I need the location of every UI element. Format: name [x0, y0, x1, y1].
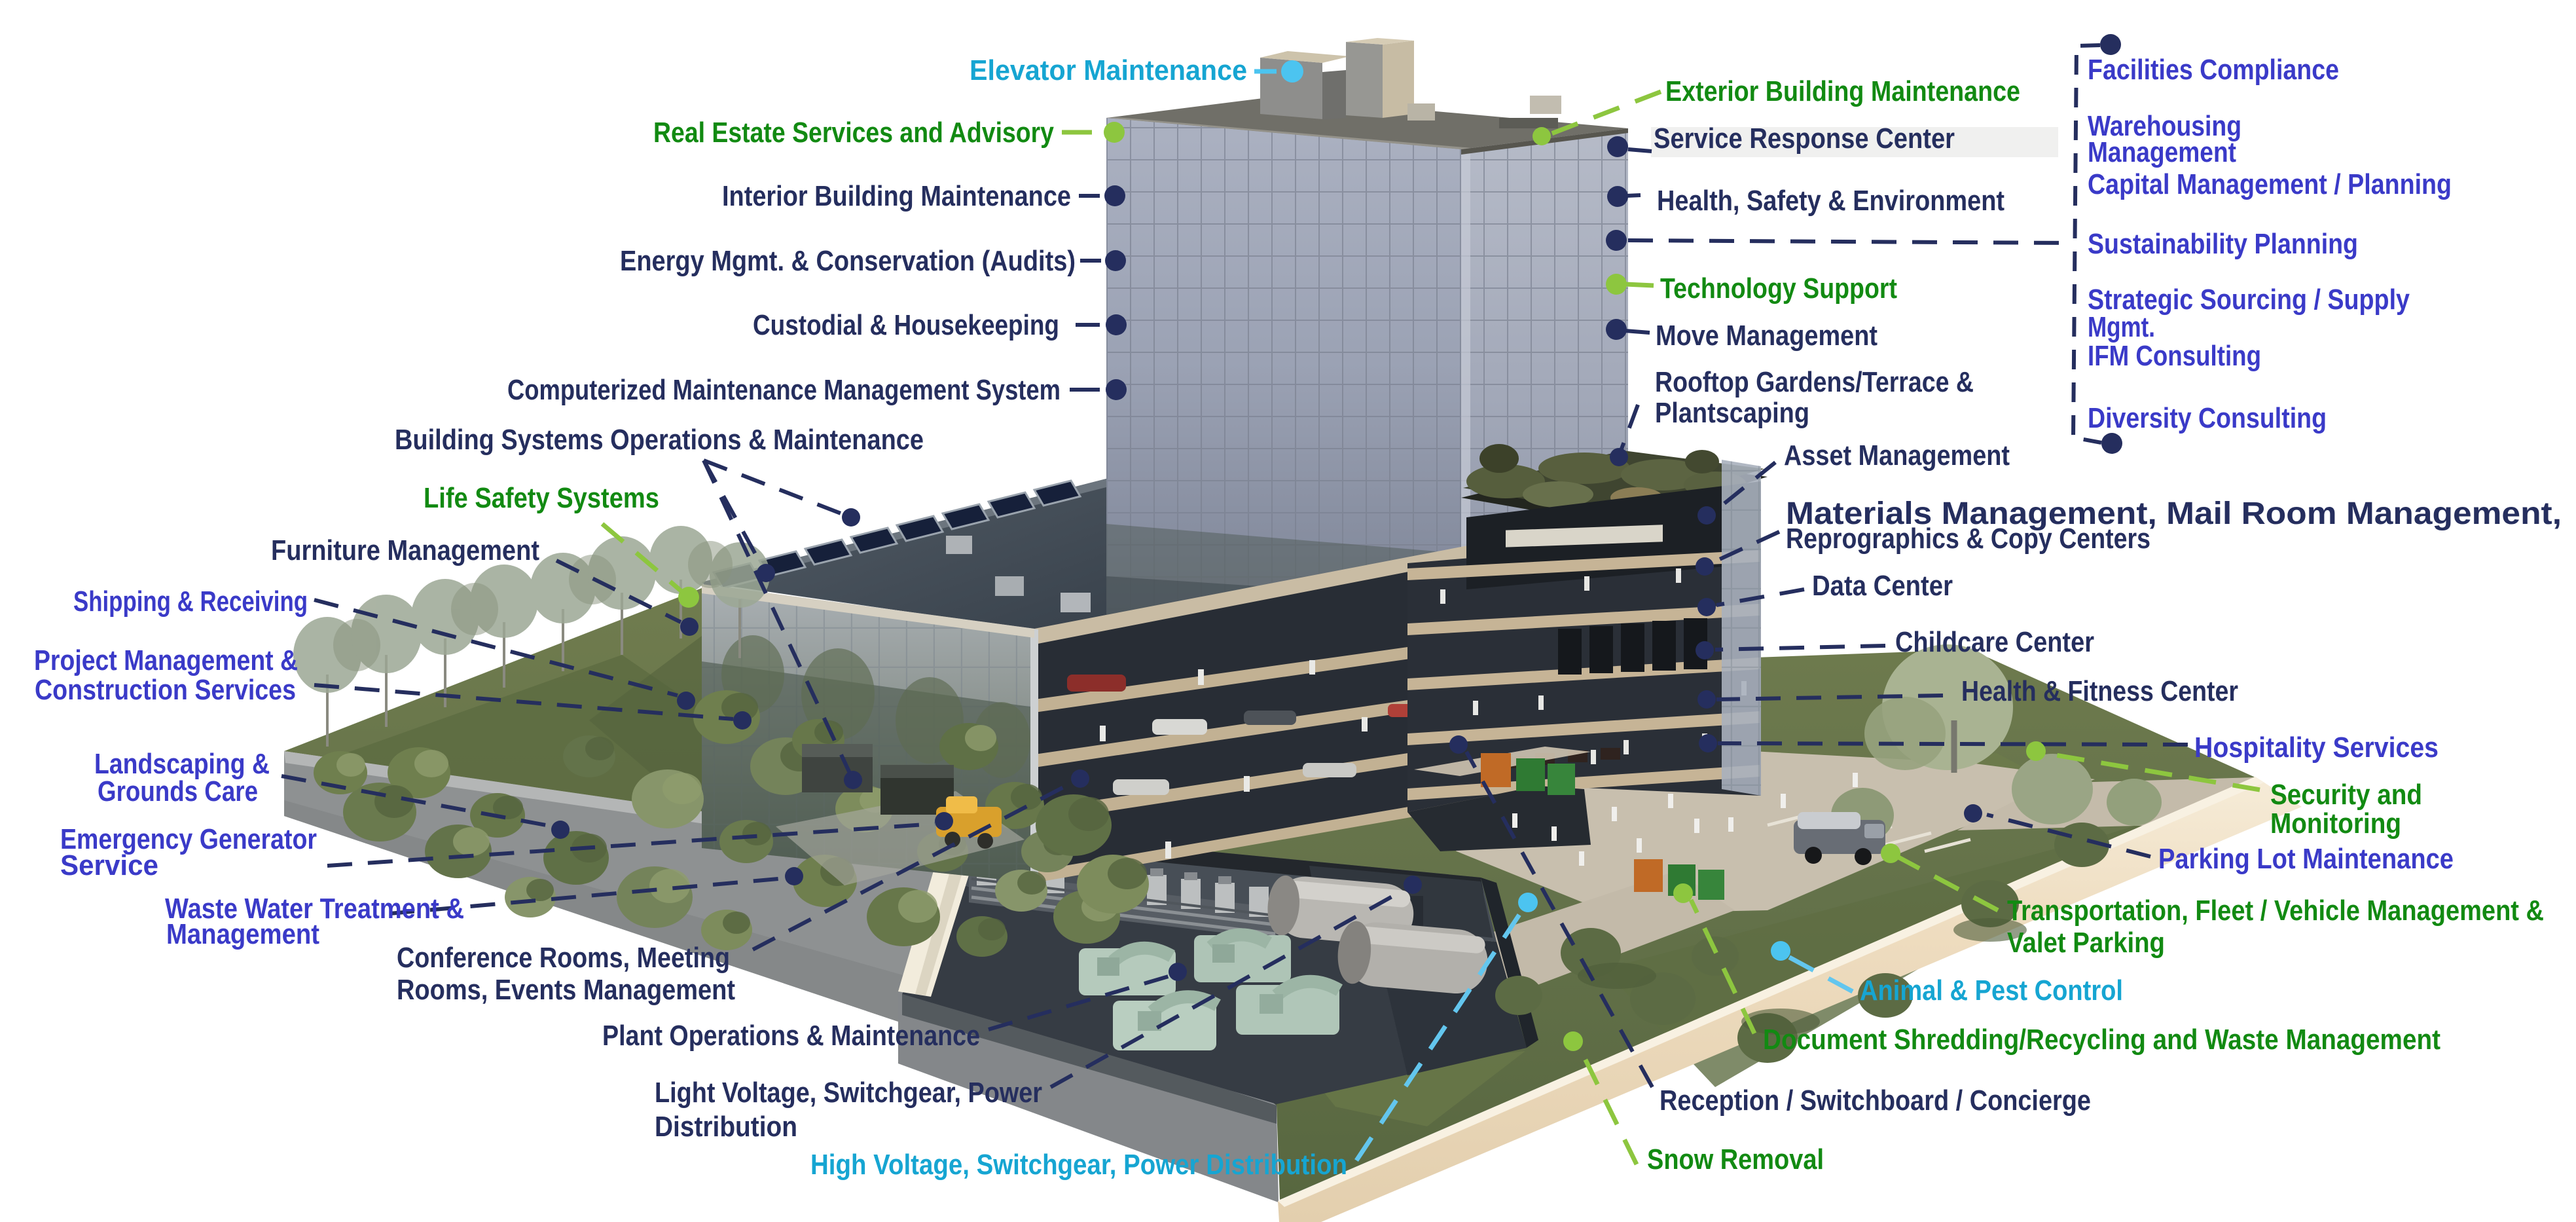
svg-text:Move Management: Move Management: [1656, 320, 1878, 352]
svg-text:Energy Mgmt. & Conservation (A: Energy Mgmt. & Conservation (Audits): [620, 245, 1076, 277]
svg-text:Elevator Maintenance: Elevator Maintenance: [970, 54, 1247, 86]
svg-text:Data Center: Data Center: [1812, 570, 1953, 602]
svg-text:Construction Services: Construction Services: [35, 674, 296, 706]
svg-text:Rooftop Gardens/Terrace &: Rooftop Gardens/Terrace &: [1655, 366, 1974, 398]
svg-text:Service: Service: [60, 849, 158, 881]
svg-text:Building Systems Operations &: Building Systems Operations & Maintenanc…: [395, 424, 924, 456]
svg-text:Facilities Compliance: Facilities Compliance: [2088, 54, 2339, 86]
svg-text:Reception / Switchboard / Conc: Reception / Switchboard / Concierge: [1660, 1084, 2091, 1117]
svg-text:Sustainability Planning: Sustainability Planning: [2088, 228, 2358, 260]
svg-text:Management: Management: [2088, 136, 2236, 168]
svg-text:Life Safety Systems: Life Safety Systems: [424, 482, 659, 514]
svg-text:Interior Building Maintenance: Interior Building Maintenance: [722, 180, 1071, 212]
svg-text:Computerized Maintenance Manag: Computerized Maintenance Management Syst…: [507, 374, 1061, 406]
svg-text:Valet Parking: Valet Parking: [2007, 927, 2165, 959]
svg-text:Technology Support: Technology Support: [1660, 272, 1897, 305]
svg-text:Rooms, Events Management: Rooms, Events Management: [397, 974, 735, 1006]
svg-text:IFM Consulting: IFM Consulting: [2088, 340, 2261, 372]
svg-text:Reprographics & Copy Centers: Reprographics & Copy Centers: [1786, 523, 2150, 555]
svg-text:Childcare Center: Childcare Center: [1895, 626, 2094, 658]
svg-text:Snow Removal: Snow Removal: [1647, 1143, 1824, 1176]
svg-text:Custodial & Housekeeping: Custodial & Housekeeping: [753, 309, 1059, 341]
svg-text:Health & Fitness Center: Health & Fitness Center: [1961, 675, 2238, 707]
svg-text:Exterior Building Maintenance: Exterior Building Maintenance: [1665, 75, 2020, 107]
svg-text:Capital Management / Planning: Capital Management / Planning: [2088, 168, 2452, 200]
svg-text:Service Response Center: Service Response Center: [1654, 122, 1955, 155]
svg-text:Asset Management: Asset Management: [1784, 439, 2010, 472]
svg-text:Project Management &: Project Management &: [34, 644, 298, 676]
svg-text:Plantscaping: Plantscaping: [1655, 397, 1809, 429]
svg-text:High Voltage, Switchgear, Powe: High Voltage, Switchgear, Power Distribu…: [810, 1149, 1347, 1181]
svg-text:Animal & Pest Control: Animal & Pest Control: [1860, 974, 2123, 1007]
svg-text:Furniture Management: Furniture Management: [271, 534, 539, 566]
svg-text:Transportation, Fleet / Vehicl: Transportation, Fleet / Vehicle Manageme…: [2007, 895, 2544, 927]
svg-text:Health, Safety & Environment: Health, Safety & Environment: [1657, 185, 2005, 217]
svg-text:Light Voltage, Switchgear, Pow: Light Voltage, Switchgear, Power: [655, 1077, 1042, 1109]
svg-text:Monitoring: Monitoring: [2270, 807, 2401, 840]
svg-text:Diversity Consulting: Diversity Consulting: [2088, 402, 2327, 434]
svg-text:Shipping & Receiving: Shipping & Receiving: [73, 585, 308, 618]
svg-text:Parking Lot Maintenance: Parking Lot Maintenance: [2158, 843, 2454, 875]
svg-text:Hospitality Services: Hospitality Services: [2194, 731, 2439, 764]
svg-text:Mgmt.: Mgmt.: [2088, 311, 2155, 343]
svg-text:Security and: Security and: [2270, 779, 2422, 811]
svg-text:Real Estate Services and Advis: Real Estate Services and Advisory: [653, 117, 1054, 149]
svg-text:Document Shredding/Recycling a: Document Shredding/Recycling and Waste M…: [1763, 1024, 2440, 1056]
svg-text:Distribution: Distribution: [655, 1111, 797, 1143]
svg-text:Grounds Care: Grounds Care: [98, 775, 258, 807]
svg-text:Management: Management: [166, 918, 319, 950]
svg-text:Plant Operations & Maintenance: Plant Operations & Maintenance: [602, 1020, 980, 1052]
svg-text:Conference Rooms, Meeting: Conference Rooms, Meeting: [397, 942, 730, 974]
